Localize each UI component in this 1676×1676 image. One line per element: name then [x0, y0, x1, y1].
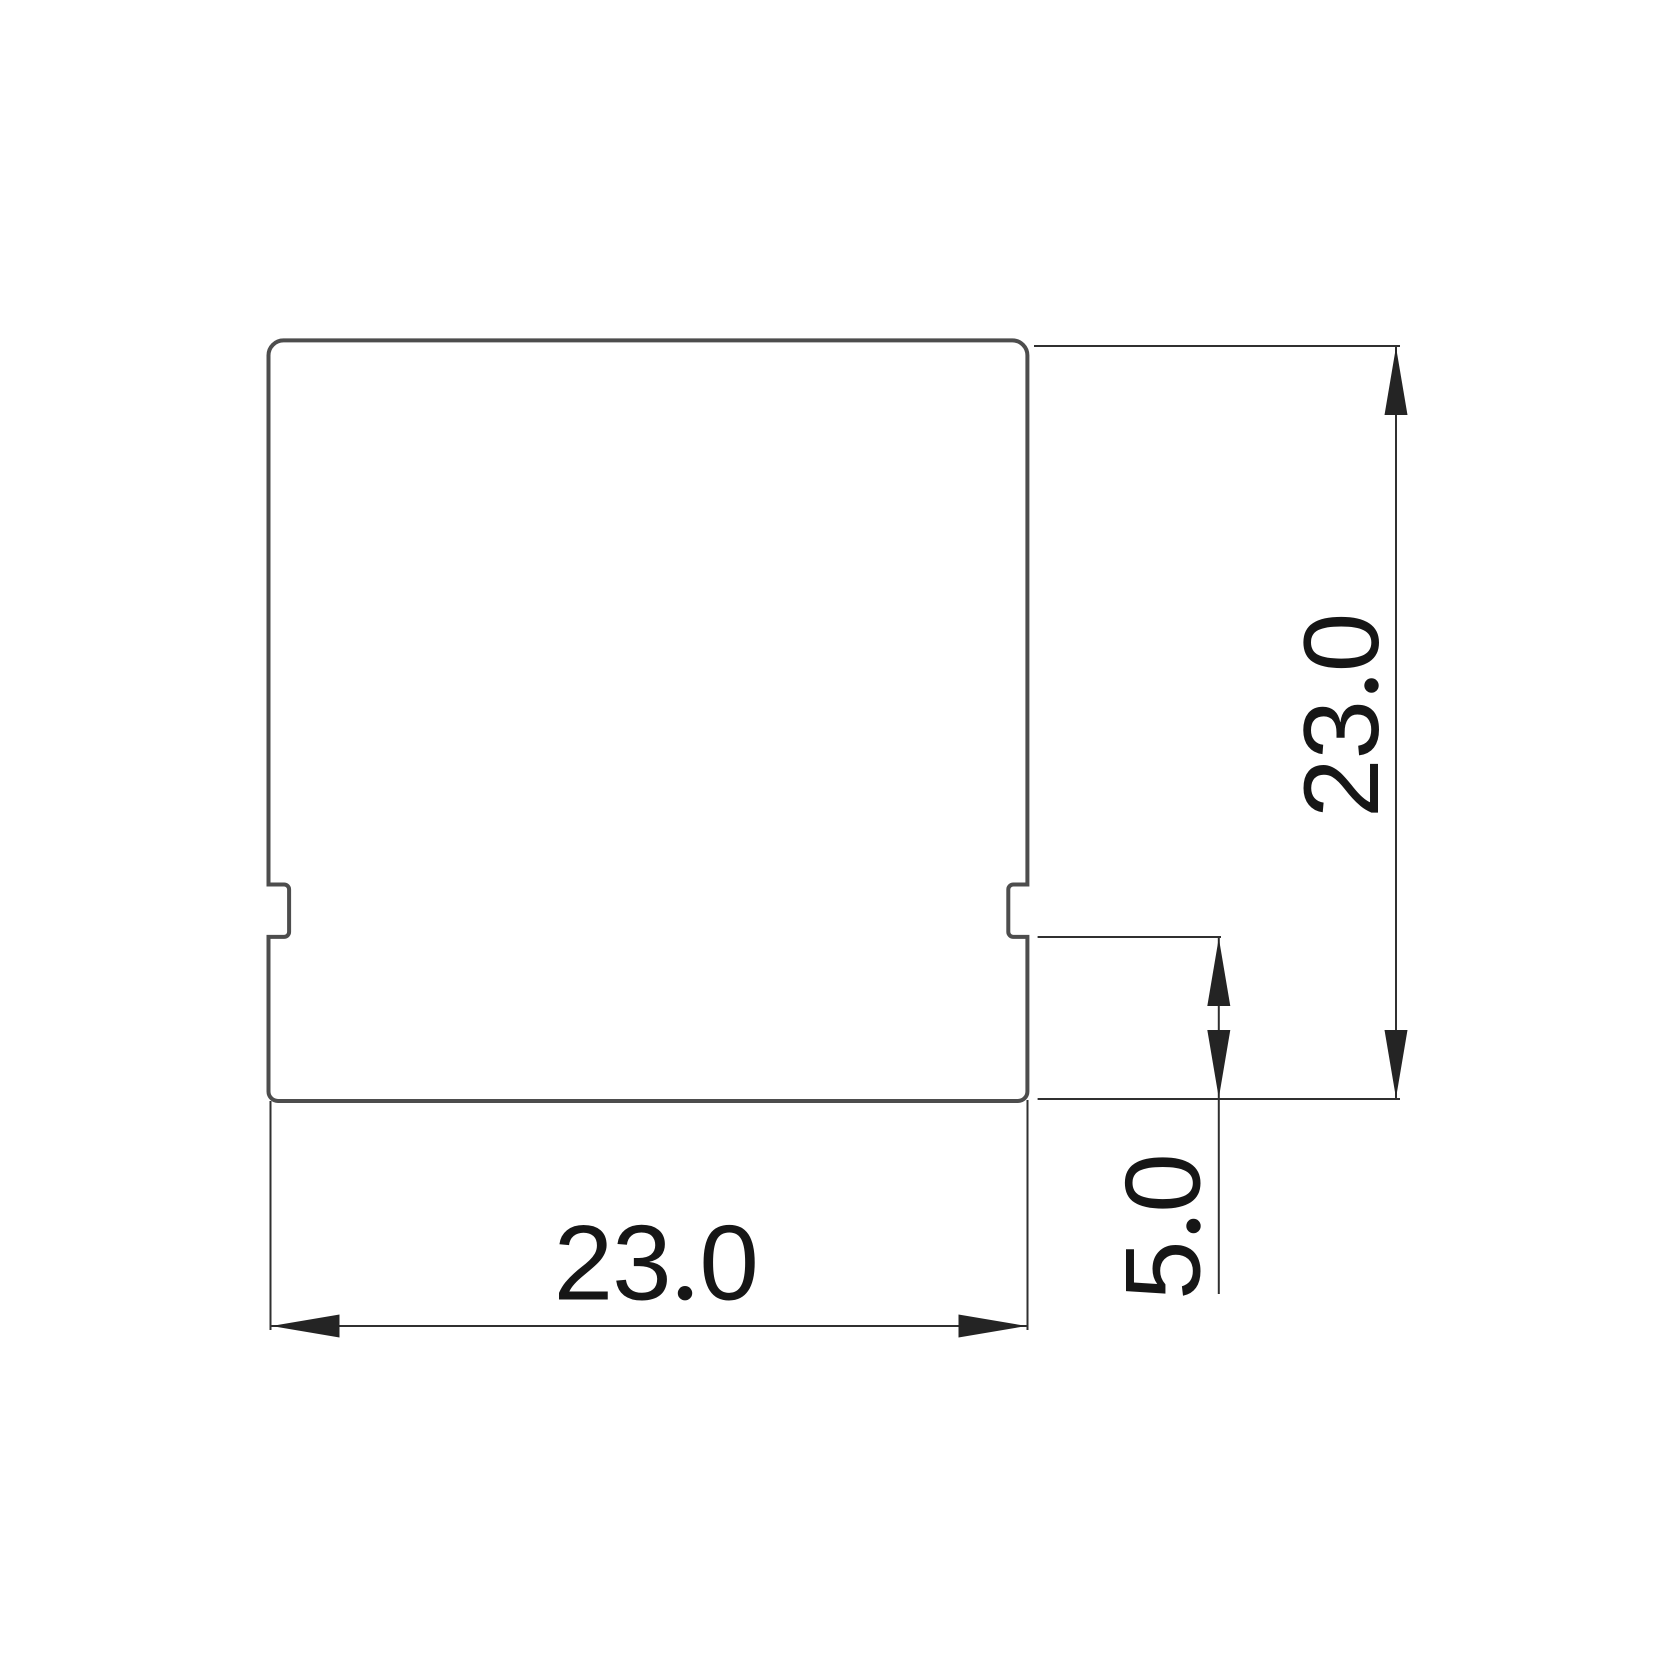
svg-text:5.0: 5.0: [1103, 1154, 1223, 1300]
svg-text:23.0: 23.0: [554, 1203, 758, 1323]
svg-text:23.0: 23.0: [1281, 614, 1401, 818]
